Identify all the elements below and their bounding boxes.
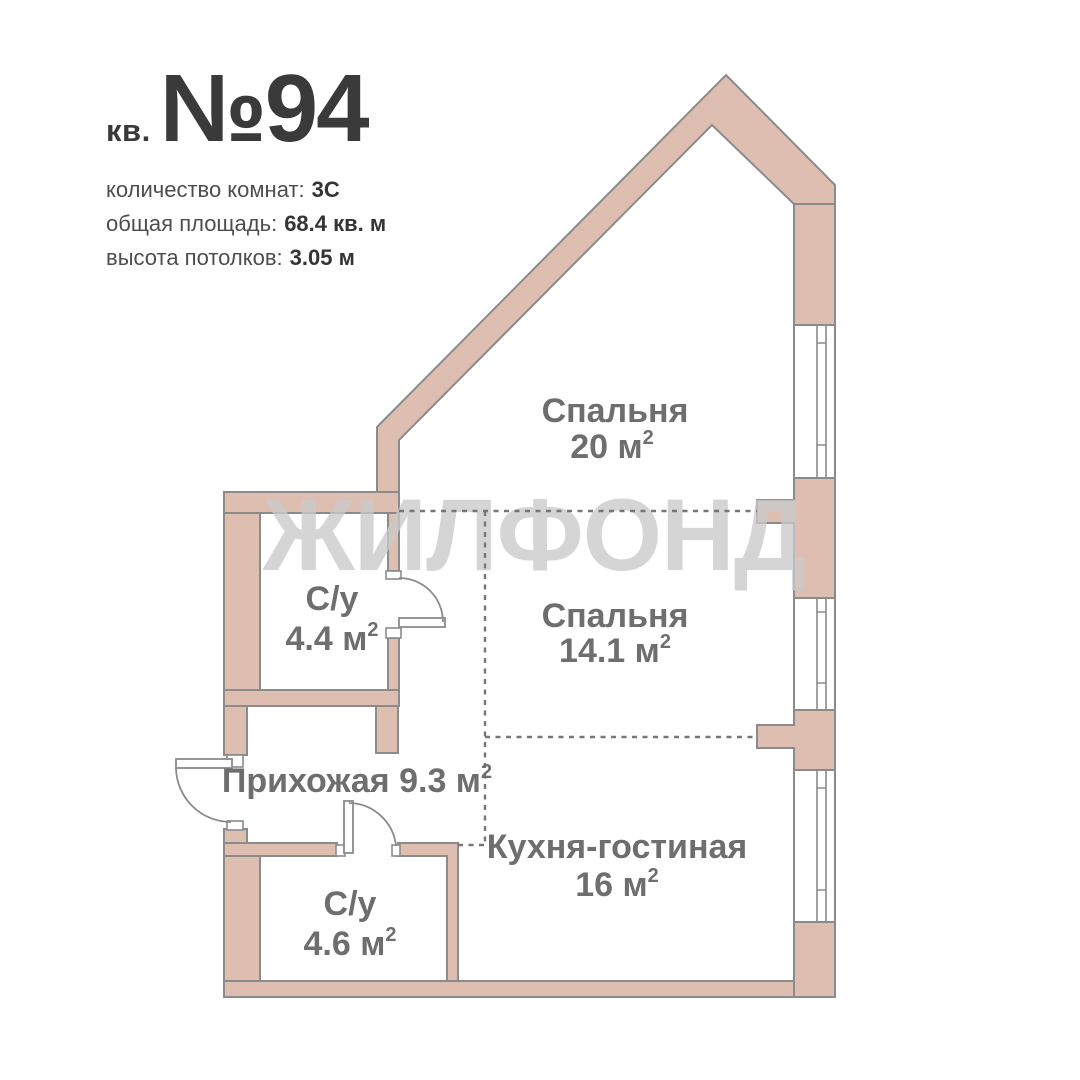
- wall-segment-hall-stub: [376, 706, 398, 753]
- room-label-kitchen-area: 16 м2: [575, 865, 659, 904]
- window-kitchen: [794, 770, 835, 922]
- window-bedroom-14: [794, 598, 835, 710]
- wall-segment-bath44-bottom: [224, 690, 399, 706]
- wall-segment-left-above-entry: [224, 706, 247, 755]
- room-label-bedroom-20-area: 20 м2: [570, 427, 654, 466]
- room-label-bathroom-44-name: С/у: [306, 580, 359, 618]
- wall-segment-bath46-right: [398, 843, 458, 981]
- room-label-bathroom-44-area: 4.4 м2: [286, 619, 379, 658]
- wall-segment-bath46-top-left: [224, 843, 337, 856]
- wall-segment-bottom: [224, 981, 794, 997]
- wall-segment-right-bottom: [794, 922, 835, 997]
- door-bathroom-46: [336, 801, 400, 856]
- wall-segment-bath44-right-lower: [388, 638, 399, 690]
- room-label-bedroom-14-name: Спальня: [542, 597, 689, 635]
- wall-segment-right-pier2: [757, 710, 835, 770]
- floor-plan: ЖИЛФОНД Спальня 20 м2 Спальня 14.1 м2 Ку…: [0, 0, 1080, 1080]
- wall-segment-left-upper: [224, 492, 260, 706]
- watermark-logo: ЖИЛФОНД: [262, 478, 806, 592]
- wall-segment-left-lower: [224, 843, 260, 981]
- door-swing-arc: [349, 803, 396, 846]
- room-label-bathroom-46-name: С/у: [324, 885, 377, 923]
- window-bedroom-20: [794, 325, 835, 478]
- door-leaf: [344, 801, 353, 853]
- wall-segment-right-top: [794, 204, 835, 325]
- windows-group: [794, 325, 835, 922]
- wall-segment-left-below-entry: [224, 829, 247, 843]
- door-jamb: [392, 845, 400, 856]
- door-jamb: [386, 628, 401, 638]
- room-label-bedroom-20-name: Спальня: [542, 392, 689, 430]
- door-leaf: [399, 618, 445, 627]
- room-label-kitchen-name: Кухня-гостиная: [487, 828, 747, 866]
- room-label-bedroom-14-area: 14.1 м2: [559, 631, 671, 670]
- room-label-hallway: Прихожая 9.3 м2: [222, 761, 492, 800]
- room-label-bathroom-46-area: 4.6 м2: [304, 924, 397, 963]
